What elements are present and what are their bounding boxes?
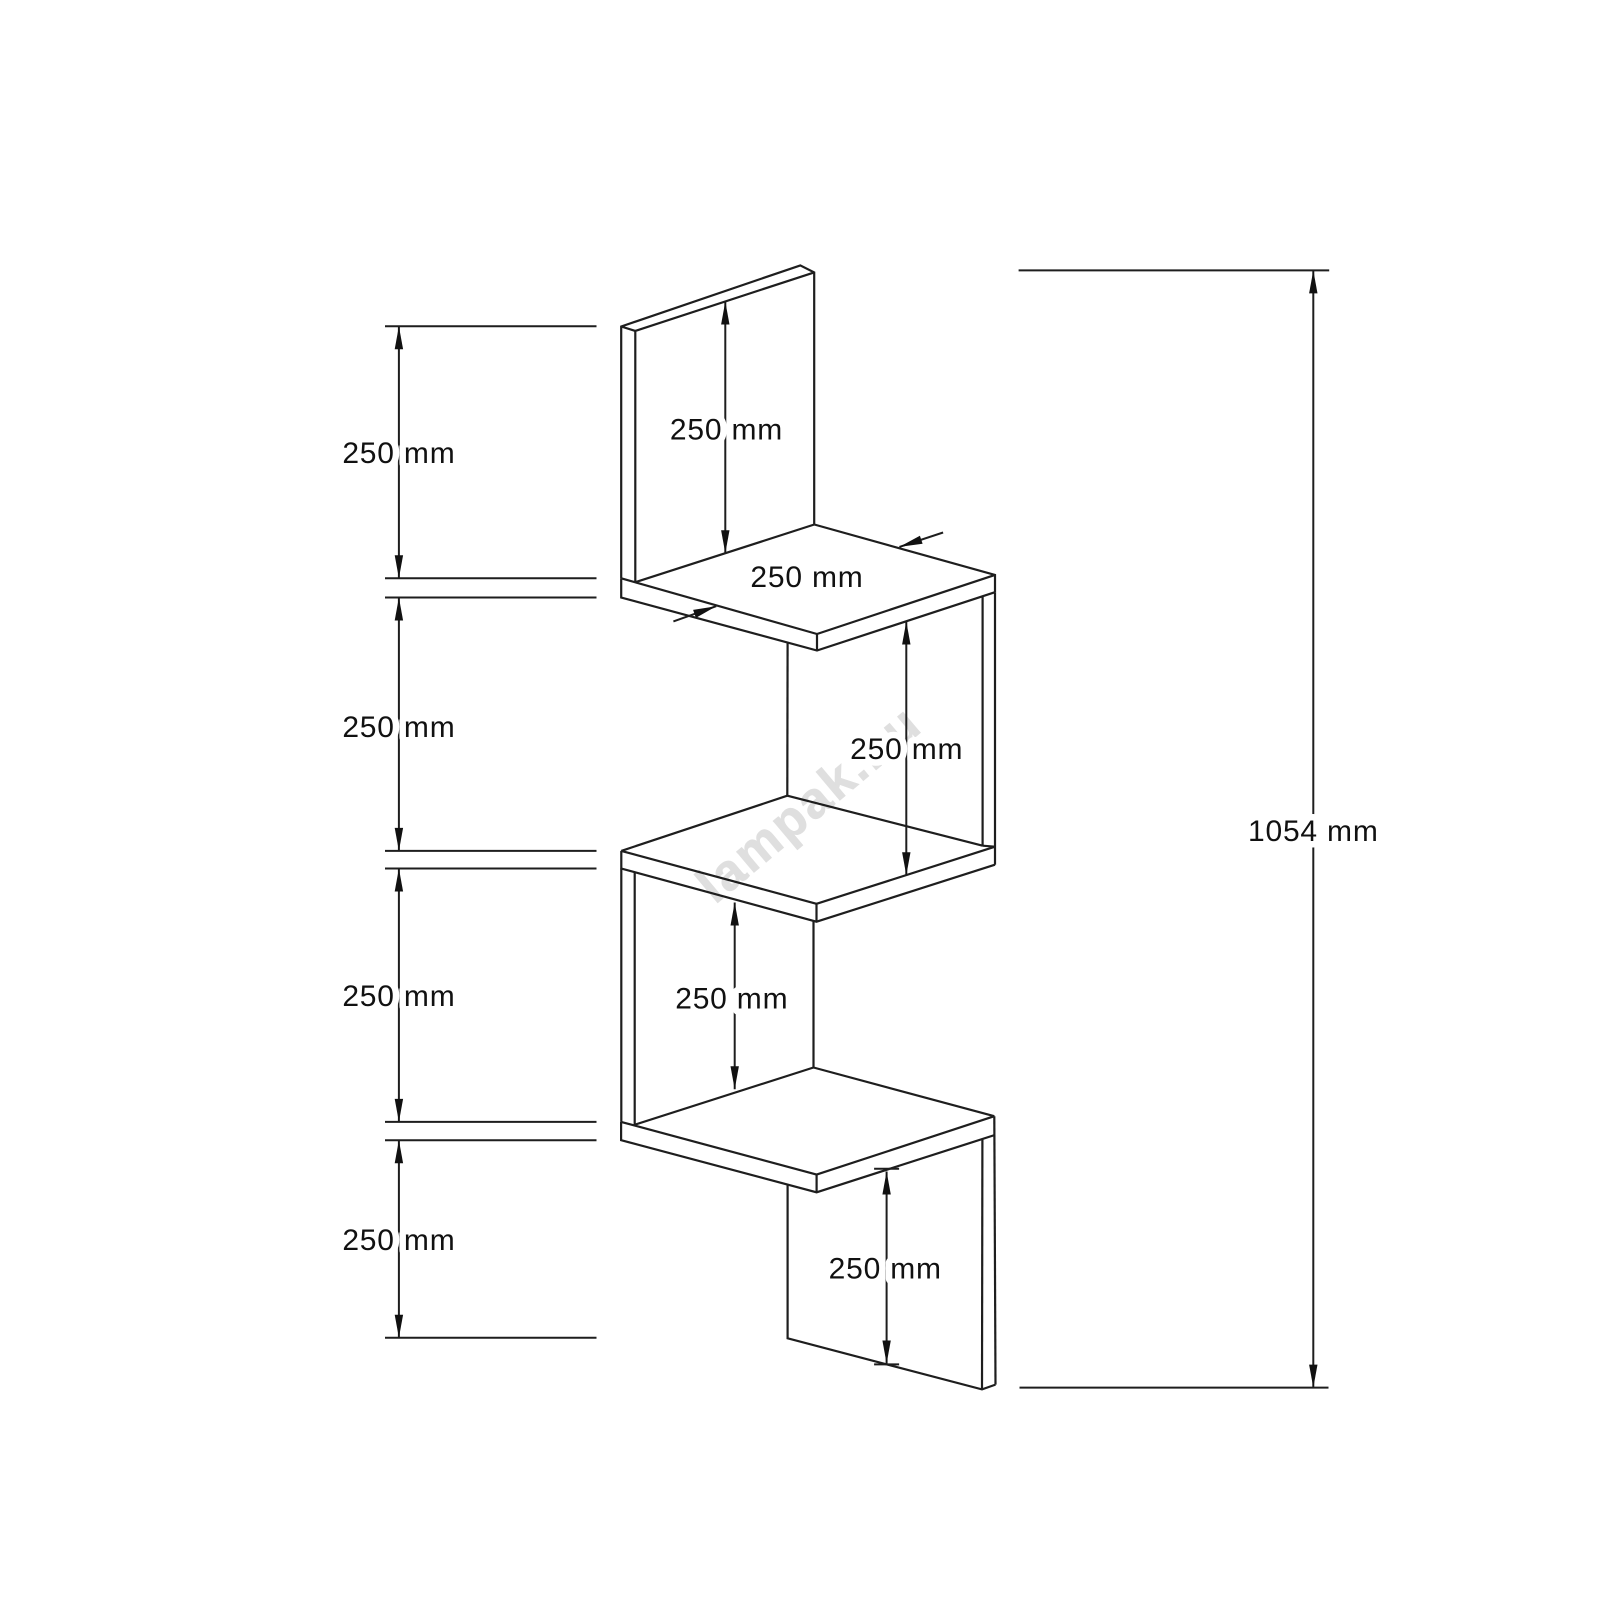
svg-text:250 mm: 250 mm <box>850 733 963 766</box>
svg-text:250 mm: 250 mm <box>342 711 455 744</box>
svg-text:250 mm: 250 mm <box>342 980 455 1013</box>
svg-text:250 mm: 250 mm <box>750 561 863 594</box>
svg-text:250 mm: 250 mm <box>670 413 783 446</box>
svg-text:250 mm: 250 mm <box>675 983 788 1016</box>
svg-text:250 mm: 250 mm <box>829 1253 942 1286</box>
svg-text:1054 mm: 1054 mm <box>1248 815 1379 848</box>
svg-text:250 mm: 250 mm <box>342 1224 455 1257</box>
svg-text:250 mm: 250 mm <box>342 437 455 470</box>
